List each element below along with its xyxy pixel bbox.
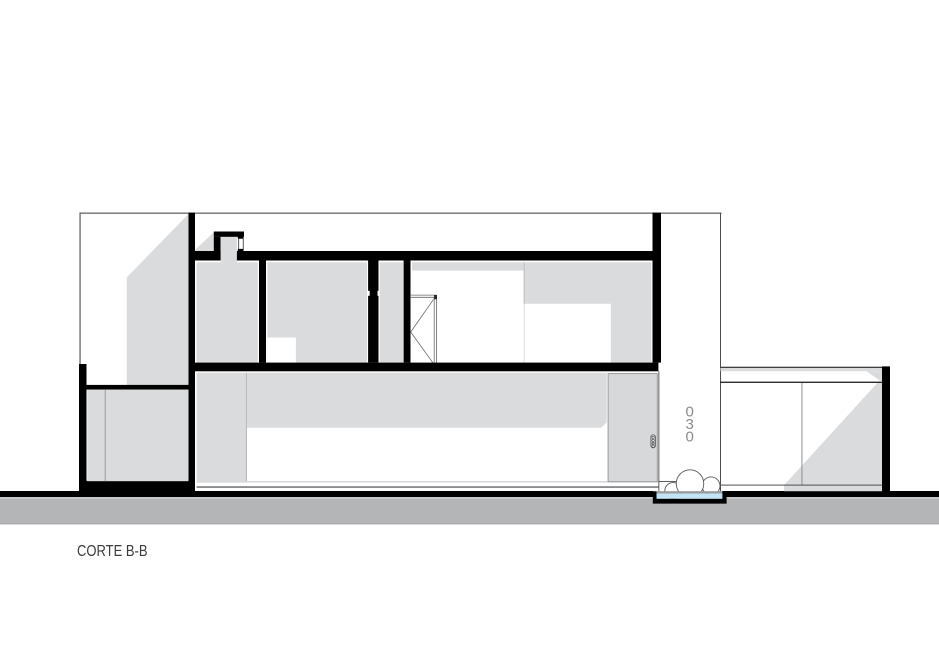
svg-text:CORTE B-B: CORTE B-B [77,543,148,560]
svg-text:0: 0 [686,429,694,446]
